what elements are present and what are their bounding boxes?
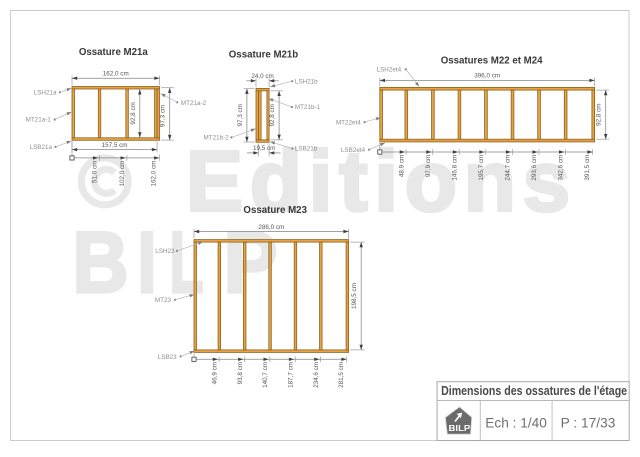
svg-text:Ossature M23: Ossature M23 [243,205,307,216]
svg-text:MT21a-1: MT21a-1 [26,117,52,124]
svg-text:LSH21b: LSH21b [295,78,318,85]
svg-text:Ossatures M22 et M24: Ossatures M22 et M24 [441,55,543,66]
svg-text:BILP: BILP [449,424,471,433]
svg-text:93,8 cm: 93,8 cm [237,362,244,384]
svg-text:244,7 cm: 244,7 cm [505,155,512,181]
svg-text:Dimensions des ossatures de l': Dimensions des ossatures de l'étage [441,383,627,398]
svg-text:162,0 cm: 162,0 cm [103,71,129,78]
svg-text:LSB21b: LSB21b [295,146,318,153]
svg-text:195,7 cm: 195,7 cm [478,155,485,181]
svg-text:48,9 cm: 48,9 cm [398,155,405,177]
svg-text:MT23: MT23 [155,297,172,304]
svg-text:I: I [138,215,157,311]
svg-text:157,5 cm: 157,5 cm [102,142,128,149]
svg-text:MT21b-1: MT21b-1 [295,104,321,111]
svg-text:Ossature M21a: Ossature M21a [79,47,149,58]
svg-text:102,0 cm: 102,0 cm [119,161,126,187]
svg-text:281,5 cm: 281,5 cm [338,362,345,388]
svg-text:162,0 cm: 162,0 cm [150,161,157,187]
svg-text:92,8 cm: 92,8 cm [130,102,137,124]
svg-text:MT22et4: MT22et4 [336,119,361,126]
svg-text:B: B [73,215,129,311]
svg-text:24,0 cm: 24,0 cm [251,73,273,80]
svg-text:146,8 cm: 146,8 cm [452,155,459,181]
svg-text:MT21b-2: MT21b-2 [203,135,229,142]
svg-text:Ossature M21b: Ossature M21b [229,49,299,60]
svg-text:396,0 cm: 396,0 cm [474,73,500,80]
svg-text:P : 17/33: P : 17/33 [561,414,616,430]
svg-text:92,8 cm: 92,8 cm [595,103,602,125]
svg-text:LSB23: LSB23 [158,354,177,361]
svg-text:LSB2et4: LSB2et4 [341,147,366,154]
svg-text:97,9 cm: 97,9 cm [425,155,432,177]
svg-text:391,5 cm: 391,5 cm [584,155,591,181]
svg-text:92,8 cm: 92,8 cm [269,104,276,126]
svg-text:MT21a-2: MT21a-2 [181,100,207,107]
svg-text:140,7 cm: 140,7 cm [262,362,269,388]
svg-text:LSH2et4: LSH2et4 [377,66,402,73]
svg-text:19,5 cm: 19,5 cm [253,145,275,152]
svg-text:286,0 cm: 286,0 cm [258,224,284,231]
svg-text:293,6 cm: 293,6 cm [531,155,538,181]
svg-text:187,7 cm: 187,7 cm [288,362,295,388]
svg-text:LSH23: LSH23 [155,248,175,255]
svg-text:97,3 cm: 97,3 cm [160,105,167,127]
svg-text:342,6 cm: 342,6 cm [558,155,565,181]
svg-text:LSH21a: LSH21a [34,90,57,97]
svg-text:97,3 cm: 97,3 cm [237,104,244,126]
svg-text:198,5 cm: 198,5 cm [351,283,358,309]
svg-text:234,6 cm: 234,6 cm [313,362,320,388]
svg-text:46,9 cm: 46,9 cm [211,362,218,384]
svg-text:LSB21a: LSB21a [30,144,53,151]
svg-text:Ech : 1/40: Ech : 1/40 [485,414,547,430]
svg-text:51,0 cm: 51,0 cm [92,161,99,183]
